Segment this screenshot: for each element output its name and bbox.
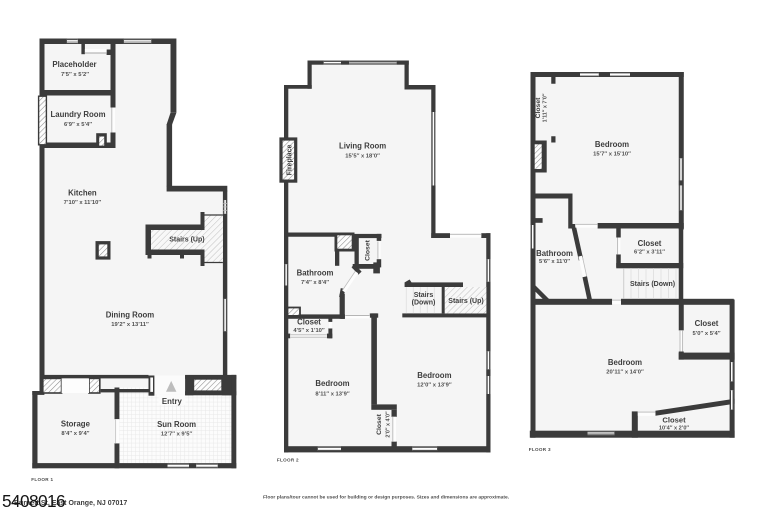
svg-text:19’2″ x 13’11″: 19’2″ x 13’11″ [111, 322, 149, 328]
svg-text:15’7″ x 15’10″: 15’7″ x 15’10″ [593, 151, 631, 157]
svg-text:4’5″ x 1’10″: 4’5″ x 1’10″ [293, 328, 325, 334]
svg-text:FLOOR 1: FLOOR 1 [31, 477, 53, 482]
svg-text:2’0″ x 4’0″: 2’0″ x 4’0″ [386, 411, 392, 438]
svg-text:15’5″ x 18’0″: 15’5″ x 18’0″ [345, 154, 380, 160]
svg-text:5408016: 5408016 [2, 491, 65, 511]
svg-text:Sun Room: Sun Room [157, 420, 196, 429]
svg-text:7’4″ x 8’4″: 7’4″ x 8’4″ [301, 280, 329, 286]
svg-text:5’6″ x 11’0″: 5’6″ x 11’0″ [539, 259, 570, 265]
svg-text:Kitchen: Kitchen [68, 189, 97, 198]
svg-text:12’7″ x 9’5″: 12’7″ x 9’5″ [161, 432, 193, 438]
svg-text:20’11″ x 14’0″: 20’11″ x 14’0″ [606, 370, 644, 376]
svg-text:Laundry Room: Laundry Room [50, 110, 105, 119]
svg-text:Bedroom: Bedroom [315, 379, 349, 388]
svg-text:8’11″ x 13’9″: 8’11″ x 13’9″ [315, 392, 349, 398]
svg-text:(Down): (Down) [412, 299, 436, 306]
svg-text:Living Room: Living Room [339, 142, 386, 151]
svg-text:Stairs (Up): Stairs (Up) [169, 237, 204, 244]
svg-text:FLOOR 3: FLOOR 3 [529, 447, 551, 452]
svg-text:Floor plans/tour cannot be use: Floor plans/tour cannot be used for buil… [263, 494, 510, 500]
svg-text:6’2″ x 3’11″: 6’2″ x 3’11″ [634, 250, 665, 256]
svg-text:6’9″ x 5’4″: 6’9″ x 5’4″ [64, 122, 92, 128]
svg-text:Bathroom: Bathroom [536, 249, 573, 258]
svg-text:Placeholder: Placeholder [52, 60, 96, 69]
svg-text:Closet: Closet [638, 239, 662, 248]
svg-text:Stairs (Up): Stairs (Up) [448, 298, 483, 305]
svg-text:Closet: Closet [376, 413, 383, 435]
svg-text:Storage: Storage [61, 420, 91, 429]
svg-text:8’4″ x 9’4″: 8’4″ x 9’4″ [61, 431, 89, 437]
svg-text:Closet: Closet [365, 239, 372, 261]
svg-text:Stairs: Stairs [414, 292, 434, 299]
svg-text:Bedroom: Bedroom [608, 358, 642, 367]
svg-text:Bedroom: Bedroom [417, 371, 451, 380]
svg-text:Stairs (Down): Stairs (Down) [630, 281, 675, 288]
svg-text:Dining Room: Dining Room [106, 311, 155, 320]
svg-text:1’11″ x 7’0″: 1’11″ x 7’0″ [543, 93, 549, 122]
svg-text:Bathroom: Bathroom [297, 269, 334, 278]
svg-text:FLOOR 2: FLOOR 2 [277, 458, 299, 463]
svg-text:5’0″ x 5’4″: 5’0″ x 5’4″ [692, 331, 720, 337]
svg-text:10’4″ x 2’0″: 10’4″ x 2’0″ [659, 426, 690, 432]
svg-text:Fireplace: Fireplace [287, 145, 294, 176]
svg-text:Entry: Entry [162, 397, 183, 406]
svg-text:Bedroom: Bedroom [595, 140, 629, 149]
svg-text:12’0″ x 13’9″: 12’0″ x 13’9″ [417, 383, 452, 389]
svg-text:Closet: Closet [695, 319, 719, 328]
svg-text:Closet: Closet [297, 318, 321, 327]
svg-text:7’10″ x 11’10″: 7’10″ x 11’10″ [64, 200, 102, 206]
svg-text:7’5″ x 5’2″: 7’5″ x 5’2″ [61, 72, 89, 78]
svg-text:Closet: Closet [535, 97, 542, 119]
svg-text:Closet: Closet [662, 416, 686, 425]
